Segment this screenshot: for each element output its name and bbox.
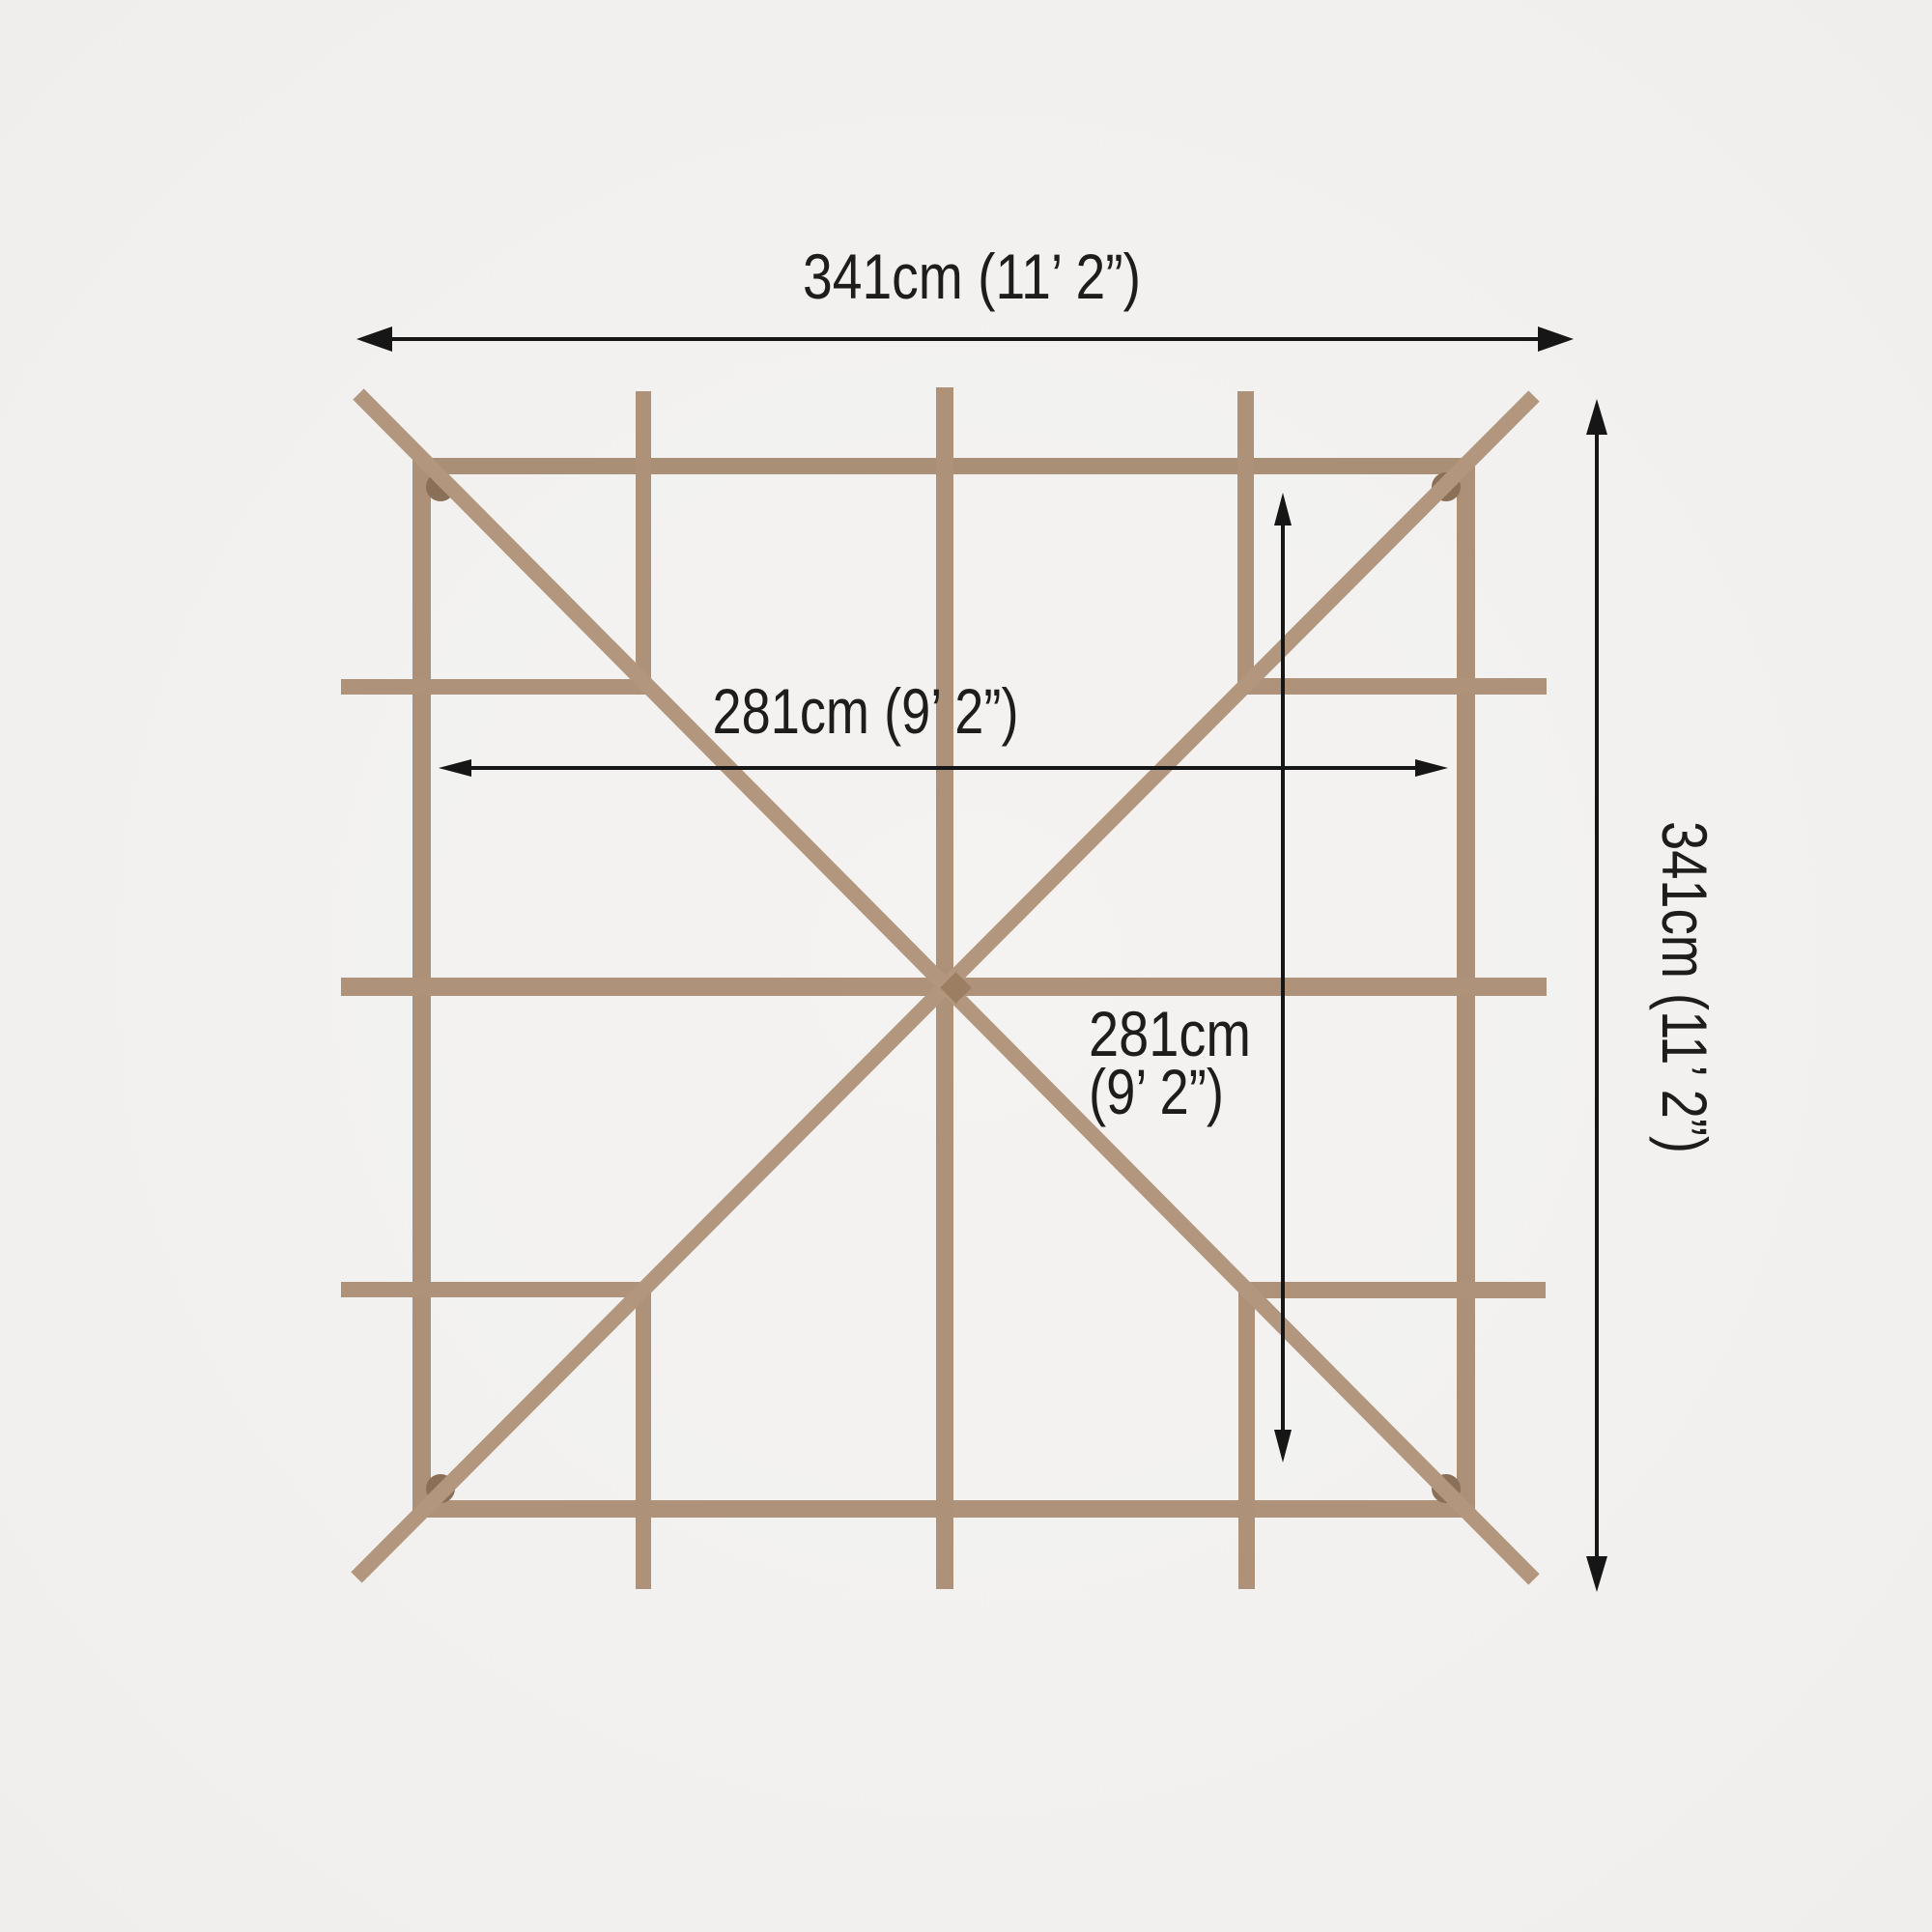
svg-text:(9’ 2”): (9’ 2”) (1089, 1056, 1224, 1127)
svg-text:281cm (9’ 2”): 281cm (9’ 2”) (713, 675, 1019, 747)
svg-text:341cm (11’ 2”): 341cm (11’ 2”) (1649, 821, 1720, 1153)
svg-text:341cm (11’ 2”): 341cm (11’ 2”) (803, 241, 1141, 312)
